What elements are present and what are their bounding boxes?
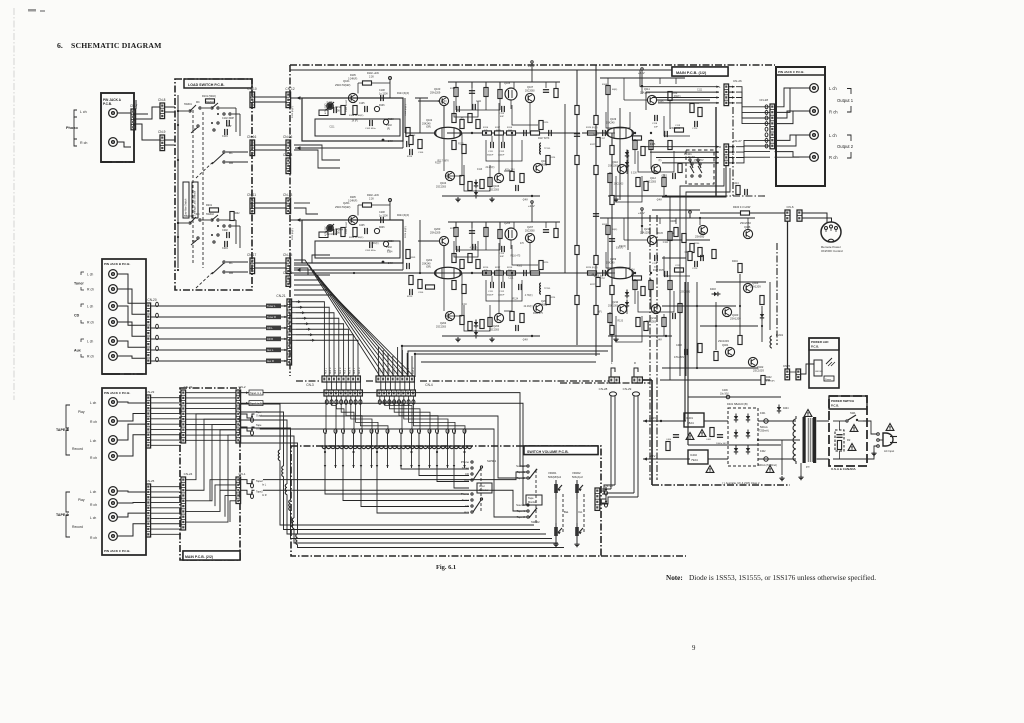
svg-text:Play: Play <box>78 498 85 502</box>
svg-text:C111: C111 <box>488 291 494 293</box>
svg-text:2SC2060: 2SC2060 <box>740 221 751 225</box>
svg-text:2SK240: 2SK240 <box>422 123 431 126</box>
svg-text:R227: R227 <box>590 284 596 286</box>
svg-text:R124: R124 <box>513 298 519 300</box>
svg-text:(T250mA): (T250mA) <box>758 429 769 432</box>
svg-text:C111: C111 <box>697 90 703 92</box>
svg-text:R ch: R ch <box>90 420 97 424</box>
svg-text:Fig. 6.1: Fig. 6.1 <box>436 564 456 571</box>
svg-text:(F): (F) <box>461 119 464 121</box>
svg-text:SWITCH VOLUME P.C.B.: SWITCH VOLUME P.C.B. <box>527 450 569 454</box>
svg-text:R2: R2 <box>847 438 851 442</box>
svg-text:CN-15: CN-15 <box>283 253 292 257</box>
svg-text:Aux R: Aux R <box>358 367 361 374</box>
svg-text:CN-21: CN-21 <box>276 294 285 298</box>
svg-text:-24V: -24V <box>387 261 393 265</box>
svg-text:C101: C101 <box>222 135 228 138</box>
svg-text:L ch: L ch <box>90 401 96 405</box>
svg-text:R201: R201 <box>206 204 213 207</box>
svg-text:2SA1209: 2SA1209 <box>430 232 441 235</box>
svg-text:R404: R404 <box>732 260 738 263</box>
svg-text:C202: C202 <box>222 229 228 232</box>
svg-text:L ch: L ch <box>90 439 96 443</box>
svg-text:IC401: IC401 <box>686 416 693 420</box>
svg-text:CN-8: CN-8 <box>158 98 166 102</box>
svg-text:Aux R: Aux R <box>339 367 342 374</box>
svg-text:R101 (501F): R101 (501F) <box>202 95 216 98</box>
svg-text:Aux L: Aux L <box>324 367 327 374</box>
svg-text:L ch: L ch <box>87 273 93 277</box>
svg-text:500mA (T250mA): 500mA (T250mA) <box>758 464 777 467</box>
svg-text:Note:: Note: <box>666 574 683 582</box>
svg-text:C205 3300P: C205 3300P <box>346 221 348 234</box>
svg-text:+24V: +24V <box>638 211 645 215</box>
svg-text:L ch: L ch <box>829 86 837 91</box>
svg-text:Bal.: Bal. <box>564 510 569 514</box>
svg-text:CN-16: CN-16 <box>247 135 256 139</box>
svg-text:(F): (F) <box>387 128 390 130</box>
svg-text:R224: R224 <box>550 297 556 299</box>
svg-text:D401 SBA100 (B): D401 SBA100 (B) <box>727 402 748 406</box>
svg-text:R117 687K: R117 687K <box>538 138 550 140</box>
svg-text:Phono: Phono <box>66 126 78 130</box>
svg-text:Aux L: Aux L <box>334 367 337 374</box>
svg-text:60P: 60P <box>500 256 504 258</box>
svg-text:C403: C403 <box>676 344 682 347</box>
svg-text:C404: C404 <box>666 439 672 441</box>
svg-text:-24V: -24V <box>522 338 528 342</box>
svg-text:C111: C111 <box>508 278 514 280</box>
svg-text:C111: C111 <box>324 105 330 107</box>
svg-text:R: R <box>719 145 721 149</box>
svg-text:LED301: LED301 <box>815 371 824 373</box>
svg-text:R226 (K)(F): R226 (K)(F) <box>292 228 294 240</box>
svg-text:+24V: +24V <box>528 204 535 208</box>
svg-text:2.2K: 2.2K <box>369 198 374 201</box>
svg-text:CN-22: CN-22 <box>184 385 193 389</box>
svg-text:2SC1003: 2SC1003 <box>489 328 500 331</box>
svg-text:2SC2060: 2SC2060 <box>525 90 535 92</box>
svg-text:CN-4: CN-4 <box>425 383 433 387</box>
svg-text:60P: 60P <box>500 116 504 118</box>
svg-text:C201: C201 <box>222 247 228 250</box>
svg-text:VR301: VR301 <box>548 471 557 475</box>
svg-text:(GR): (GR) <box>426 127 431 129</box>
svg-text:L ch: L ch <box>80 110 87 114</box>
svg-text:R108: R108 <box>602 84 608 86</box>
svg-text:CD: CD <box>465 472 469 476</box>
svg-text:R400 3.3 1/2W: R400 3.3 1/2W <box>733 205 751 209</box>
svg-text:MM: MM <box>229 272 233 275</box>
svg-text:MAIN P.C.B. (1/2): MAIN P.C.B. (1/2) <box>676 71 707 75</box>
svg-text:0.22K: 0.22K <box>327 102 333 104</box>
svg-text:MC: MC <box>229 152 233 155</box>
svg-text:22.2K(F): 22.2K(F) <box>524 306 533 308</box>
svg-text:Tuner: Tuner <box>462 466 469 470</box>
svg-text:C105 3300P: C105 3300P <box>346 99 348 112</box>
svg-text:D403: D403 <box>710 288 716 291</box>
svg-text:CN-06: CN-06 <box>283 135 292 139</box>
svg-text:C105: C105 <box>359 103 365 105</box>
svg-text:2SC1003: 2SC1003 <box>670 128 680 130</box>
svg-text:MC: MC <box>196 101 200 104</box>
svg-text:CN-13: CN-13 <box>283 193 292 197</box>
svg-text:R106: R106 <box>379 105 385 107</box>
svg-text:-24V: -24V <box>656 338 662 342</box>
svg-text:Power: Power <box>825 378 831 381</box>
svg-text:Vol.: Vol. <box>578 510 583 514</box>
svg-text:CN-18: CN-18 <box>283 153 292 157</box>
svg-text:R118: R118 <box>507 127 513 129</box>
svg-text:C217: C217 <box>600 278 606 280</box>
svg-text:R ch: R ch <box>90 536 97 540</box>
svg-text:R110: R110 <box>450 88 456 90</box>
svg-text:PIN JACK C P.C.B.: PIN JACK C P.C.B. <box>104 391 130 395</box>
svg-text:9: 9 <box>692 645 696 652</box>
svg-text:D404: D404 <box>783 408 789 410</box>
svg-text:CN-20: CN-20 <box>147 298 156 302</box>
svg-text:R133: R133 <box>617 320 623 322</box>
svg-text:7924: 7924 <box>691 458 698 462</box>
svg-text:600P: 600P <box>226 126 232 128</box>
svg-text:R ch: R ch <box>87 288 94 292</box>
svg-text:CN-1: CN-1 <box>238 472 245 476</box>
svg-text:Aux: Aux <box>464 510 469 514</box>
svg-text:2SC2060: 2SC2060 <box>525 230 535 232</box>
svg-text:C220: C220 <box>692 268 698 270</box>
svg-text:2SC1003: 2SC1003 <box>608 305 619 308</box>
svg-text:C103 450u: C103 450u <box>365 128 376 130</box>
svg-text:SW302: SW302 <box>531 520 540 524</box>
svg-text:Aux: Aux <box>74 349 81 353</box>
svg-text:(F): (F) <box>659 160 662 162</box>
svg-text:R ch: R ch <box>90 503 97 507</box>
svg-text:+24V: +24V <box>528 64 535 68</box>
svg-text:CN-27: CN-27 <box>733 139 742 143</box>
svg-text:L ch: L ch <box>87 305 93 309</box>
svg-text:R224 (K)(F): R224 (K)(F) <box>405 226 407 238</box>
svg-text:P.T.: P.T. <box>806 465 810 469</box>
svg-text:Q403: Q403 <box>732 313 739 317</box>
svg-text:Q207: Q207 <box>527 226 534 229</box>
svg-text:U.S.A & CANADA: U.S.A & CANADA <box>831 467 857 471</box>
svg-text:33K(F): 33K(F) <box>372 243 379 245</box>
svg-text:C414: C414 <box>733 183 739 185</box>
svg-text:33K(F): 33K(F) <box>616 248 623 250</box>
svg-text:C203 450u: C203 450u <box>365 250 376 252</box>
svg-text:C111: C111 <box>488 151 494 153</box>
svg-text:-24V: -24V <box>656 198 662 202</box>
svg-text:R402: R402 <box>766 377 772 379</box>
svg-text:R406: R406 <box>670 220 676 223</box>
svg-text:Cartridge Load Selector: Cartridge Load Selector <box>194 191 197 216</box>
svg-text:R ch: R ch <box>80 141 87 145</box>
svg-text:CD L: CD L <box>267 327 273 330</box>
svg-text:R210: R210 <box>450 228 456 230</box>
svg-text:Aux R: Aux R <box>329 367 332 374</box>
svg-text:C120: C120 <box>692 128 698 130</box>
svg-text:SW302: SW302 <box>206 213 215 216</box>
svg-text:R124 (K)(F): R124 (K)(F) <box>397 93 409 95</box>
svg-text:Record: Record <box>72 525 83 529</box>
svg-text:CN-24: CN-24 <box>184 472 193 476</box>
svg-text:40P: 40P <box>654 266 658 268</box>
svg-text:Q406: Q406 <box>744 225 751 229</box>
svg-text:R105: R105 <box>517 266 523 268</box>
svg-text:C113: C113 <box>477 169 483 171</box>
svg-text:RL301: RL301 <box>684 152 692 156</box>
svg-text:2SC1003: 2SC1003 <box>614 183 624 185</box>
svg-text:P.C.B.: P.C.B. <box>103 102 112 106</box>
svg-text:2SC1003: 2SC1003 <box>753 369 764 373</box>
svg-text:C112: C112 <box>499 291 505 293</box>
svg-text:R202: R202 <box>234 213 240 215</box>
svg-text:PIN JACK B P.C.B.: PIN JACK B P.C.B. <box>104 262 130 266</box>
svg-text:40P: 40P <box>654 126 658 128</box>
svg-text:R206: R206 <box>379 227 385 229</box>
svg-text:AC Input: AC Input <box>884 449 894 453</box>
svg-text:R105: R105 <box>657 233 663 235</box>
svg-text:ON/OFF Control: ON/OFF Control <box>821 249 843 253</box>
svg-text:50K(A)x2: 50K(A)x2 <box>572 475 583 479</box>
svg-text:68(F): 68(F) <box>612 89 617 91</box>
svg-text:L ch: L ch <box>90 490 96 494</box>
svg-text:22.2K(F): 22.2K(F) <box>438 101 447 103</box>
svg-text:R120: R120 <box>543 122 549 124</box>
svg-text:2SK240: 2SK240 <box>606 262 615 265</box>
svg-text:2SK170(GR): 2SK170(GR) <box>335 83 350 87</box>
svg-text:C112: C112 <box>499 151 505 153</box>
svg-text:5K: 5K <box>337 110 340 113</box>
svg-text:SW301: SW301 <box>487 459 497 463</box>
svg-text:F402: F402 <box>760 450 766 453</box>
svg-text:Record: Record <box>72 447 83 451</box>
svg-text:C106: C106 <box>418 152 424 154</box>
svg-text:Q203: Q203 <box>434 227 441 231</box>
svg-text:Q405: Q405 <box>699 231 706 235</box>
svg-text:Tuner: Tuner <box>74 282 84 286</box>
svg-text:-24V: -24V <box>387 139 393 143</box>
svg-text:R204 22.4K(F): R204 22.4K(F) <box>349 237 364 239</box>
svg-text:Q107: Q107 <box>527 86 534 89</box>
svg-text:2SK240: 2SK240 <box>606 122 615 125</box>
svg-text:4.7K(F): 4.7K(F) <box>470 247 478 249</box>
svg-text:2SA1209: 2SA1209 <box>730 317 741 321</box>
svg-text:C104: C104 <box>338 229 344 231</box>
svg-text:R208: R208 <box>602 224 608 226</box>
svg-text:2SA950: 2SA950 <box>695 235 705 239</box>
svg-text:CD: CD <box>465 504 469 508</box>
svg-text:C205: C205 <box>359 225 365 227</box>
svg-text:C113: C113 <box>499 113 505 115</box>
svg-text:Monitor: Monitor <box>528 500 537 504</box>
svg-text:VR302: VR302 <box>572 471 581 475</box>
svg-text:2.2K: 2.2K <box>369 76 374 79</box>
svg-text:CN-7: CN-7 <box>130 104 138 108</box>
svg-text:R ch: R ch <box>829 110 838 115</box>
svg-text:Tape: Tape <box>528 496 534 500</box>
svg-text:Aux R: Aux R <box>348 367 351 374</box>
svg-text:50K(MN)x2: 50K(MN)x2 <box>548 475 562 479</box>
svg-text:Q105: Q105 <box>504 82 511 85</box>
svg-text:5K: 5K <box>337 232 340 235</box>
svg-text:CN-28: CN-28 <box>599 387 608 391</box>
svg-text:R209: R209 <box>410 257 416 259</box>
svg-text:CN-10: CN-10 <box>247 87 256 91</box>
svg-text:C102 300P: C102 300P <box>222 117 234 120</box>
svg-text:Aux L: Aux L <box>353 367 356 374</box>
svg-text:SW301: SW301 <box>184 103 193 106</box>
svg-text:POWER LED: POWER LED <box>811 340 829 344</box>
svg-text:C111: C111 <box>329 126 335 128</box>
svg-text:-24V: -24V <box>522 198 528 202</box>
svg-text:R127: R127 <box>590 144 596 146</box>
svg-text:SCHEMATIC DIAGRAM: SCHEMATIC DIAGRAM <box>71 41 162 50</box>
svg-text:SW302: SW302 <box>206 101 215 104</box>
svg-text:CN-2: CN-2 <box>238 385 245 389</box>
svg-text:Q402: Q402 <box>757 365 764 369</box>
svg-text:Input: Input <box>479 484 485 488</box>
svg-text:CD R: CD R <box>267 338 273 341</box>
svg-text:R116: R116 <box>483 127 489 129</box>
svg-text:Q103: Q103 <box>661 175 667 177</box>
svg-text:3600P: 3600P <box>487 294 494 296</box>
svg-text:TP201: TP201 <box>544 288 551 290</box>
svg-text:Output 1: Output 1 <box>837 98 854 103</box>
svg-text:Diode is 1SS53, 1S1555, or 1SS: Diode is 1SS53, 1S1555, or 1SS176 unless… <box>689 573 876 582</box>
svg-text:Phono: Phono <box>461 460 470 464</box>
svg-text:F401: F401 <box>760 412 766 415</box>
svg-text:R133: R133 <box>458 144 464 146</box>
svg-text:2SK240: 2SK240 <box>422 263 431 266</box>
svg-text:68(F): 68(F) <box>612 229 617 231</box>
svg-text:CN-5: CN-5 <box>783 364 790 368</box>
svg-text:R224 (K)(F): R224 (K)(F) <box>397 215 409 217</box>
svg-text:0.21K: 0.21K <box>386 125 392 127</box>
svg-text:Phono: Phono <box>461 492 470 496</box>
svg-text:+24V: +24V <box>638 71 645 75</box>
svg-text:L: L <box>611 361 613 365</box>
svg-text:R210: R210 <box>407 296 413 298</box>
svg-text:C119: C119 <box>675 125 681 127</box>
svg-text:R ch: R ch <box>87 355 94 359</box>
svg-text:2SC1003: 2SC1003 <box>326 234 336 236</box>
svg-text:Aux L: Aux L <box>267 349 274 352</box>
svg-text:Tuner: Tuner <box>462 498 469 502</box>
svg-text:CD: CD <box>74 314 80 318</box>
svg-text:78A: 78A <box>508 269 512 272</box>
svg-text:CN-23: CN-23 <box>146 390 155 394</box>
svg-text:C111: C111 <box>476 101 482 103</box>
svg-text:L ch: L ch <box>87 340 93 344</box>
svg-text:R116 475: R116 475 <box>533 313 544 315</box>
svg-text:C111: C111 <box>663 242 669 244</box>
svg-text:C113: C113 <box>499 253 505 255</box>
svg-text:2SC1003: 2SC1003 <box>436 326 447 329</box>
svg-text:L ch: L ch <box>829 133 837 138</box>
svg-text:PIN JACK C P.C.B.: PIN JACK C P.C.B. <box>778 70 804 74</box>
svg-text:R ch: R ch <box>829 155 838 160</box>
svg-text:CN-11: CN-11 <box>247 193 256 197</box>
svg-text:C401: C401 <box>706 439 712 441</box>
svg-text:R217: R217 <box>495 267 501 269</box>
svg-text:CN-9: CN-9 <box>158 130 166 134</box>
svg-text:470u 50V: 470u 50V <box>674 356 685 359</box>
svg-text:R104 22.4K(F): R104 22.4K(F) <box>349 115 364 117</box>
svg-text:R124: R124 <box>550 157 556 159</box>
svg-text:Aux L: Aux L <box>344 367 347 374</box>
svg-text:R120: R120 <box>435 162 441 164</box>
svg-text:CN-25: CN-25 <box>146 479 155 483</box>
svg-text:R230: R230 <box>694 243 700 245</box>
svg-text:CN-26: CN-26 <box>733 79 742 83</box>
svg-text:C118: C118 <box>652 123 658 125</box>
svg-text:Low filter Switch: Low filter Switch <box>185 198 188 216</box>
svg-text:R117 687K: R117 687K <box>653 270 665 272</box>
svg-text:L: L <box>719 85 721 89</box>
svg-text:R124: R124 <box>629 269 635 271</box>
svg-text:CN-3: CN-3 <box>306 383 314 387</box>
svg-text:0.22K: 0.22K <box>631 172 637 174</box>
svg-text:CN-17: CN-17 <box>247 253 256 257</box>
svg-text:6.: 6. <box>57 41 63 50</box>
svg-text:Q205: Q205 <box>504 222 511 225</box>
svg-text:MC: MC <box>229 262 233 265</box>
svg-text:78A: 78A <box>508 129 512 132</box>
svg-text:2SA1209: 2SA1209 <box>750 285 761 289</box>
svg-text:2SC1003: 2SC1003 <box>608 165 619 168</box>
svg-text:1K (F): 1K (F) <box>351 121 358 123</box>
svg-text:R216: R216 <box>483 267 489 269</box>
svg-text:R110: R110 <box>407 156 413 158</box>
svg-text:470: 470 <box>520 243 525 245</box>
svg-text:4.7K(F): 4.7K(F) <box>525 295 533 297</box>
svg-text:2SC1003: 2SC1003 <box>718 339 729 343</box>
svg-text:C406: C406 <box>722 389 728 392</box>
svg-text:Q103: Q103 <box>434 87 441 91</box>
svg-text:Aux R: Aux R <box>267 360 274 363</box>
svg-text:L ch: L ch <box>90 516 96 520</box>
svg-text:2SK170(GR): 2SK170(GR) <box>335 205 350 209</box>
svg-text:2SC1003: 2SC1003 <box>436 186 447 189</box>
svg-text:P.C.B.: P.C.B. <box>811 345 819 349</box>
svg-text:R ch: R ch <box>87 321 94 325</box>
svg-text:CN-28: CN-28 <box>759 98 768 102</box>
svg-text:C206: C206 <box>418 292 424 294</box>
svg-text:CN-6: CN-6 <box>786 205 793 209</box>
svg-text:2SA1209: 2SA1209 <box>640 232 651 235</box>
svg-text:IC402: IC402 <box>690 453 697 457</box>
svg-text:2SA1209: 2SA1209 <box>430 92 441 95</box>
svg-text:0.21K: 0.21K <box>386 247 392 249</box>
svg-text:C118: C118 <box>652 263 658 265</box>
svg-text:Tuner L: Tuner L <box>267 305 276 308</box>
svg-text:(GR): (GR) <box>426 267 431 269</box>
svg-text:C117: C117 <box>600 138 606 140</box>
svg-text:R126 (K)(F): R126 (K)(F) <box>292 106 294 118</box>
svg-text:R114 (F): R114 (F) <box>594 276 603 278</box>
svg-text:Tape1 In L: Tape1 In L <box>250 392 262 395</box>
svg-text:Q401: Q401 <box>722 343 729 347</box>
svg-text:3.24K(F): 3.24K(F) <box>348 200 358 203</box>
svg-text:POWER SWITCH: POWER SWITCH <box>831 399 854 403</box>
svg-text:R117: R117 <box>495 127 501 129</box>
svg-text:SW1: SW1 <box>850 411 856 415</box>
svg-text:Play: Play <box>78 410 85 414</box>
svg-text:CN-29: CN-29 <box>623 387 632 391</box>
svg-text:3600P: 3600P <box>487 154 494 156</box>
svg-text:2SC1003: 2SC1003 <box>489 188 500 191</box>
